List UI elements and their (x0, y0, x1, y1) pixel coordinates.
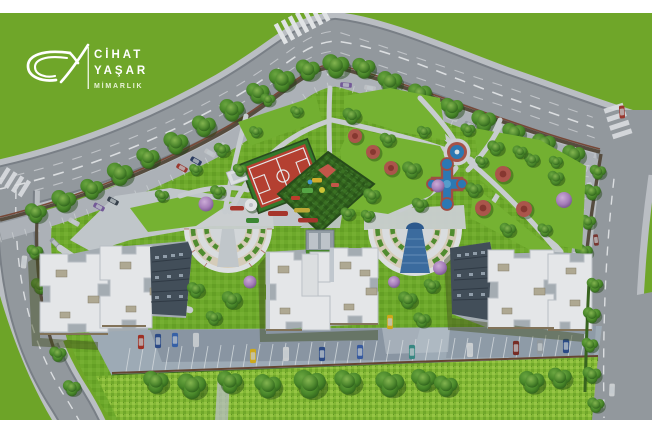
svg-text:MİMARLIK: MİMARLIK (94, 82, 143, 90)
svg-text:CİHAT: CİHAT (94, 48, 143, 61)
svg-text:YAŞAR: YAŞAR (94, 65, 148, 77)
